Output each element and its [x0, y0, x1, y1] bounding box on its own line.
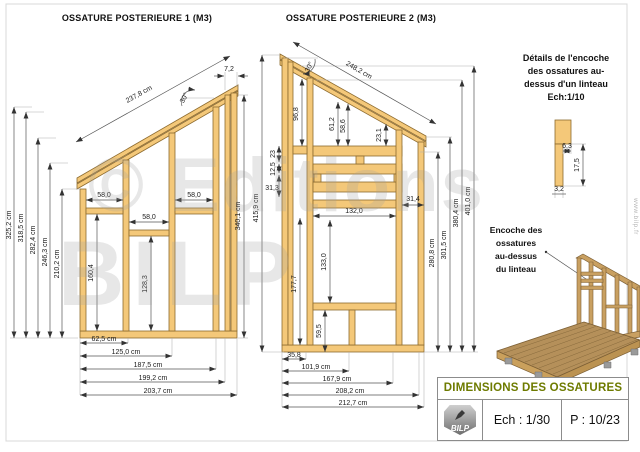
- dim-label: 415,9 cm: [253, 193, 260, 222]
- pencil-icon: [455, 410, 465, 420]
- plan-sheet: 237,8 cm 30° 7,2 325,2 cm 318,5 cm 282,4…: [0, 0, 640, 452]
- dim-label: 128,3: [142, 275, 149, 293]
- callout-line: ossatures: [484, 237, 548, 250]
- page-number: P : 10/23: [562, 400, 628, 440]
- dim-label: 59,5: [316, 324, 323, 338]
- dim-label: 380,4 cm: [453, 198, 460, 227]
- dim-label: 58,6: [340, 119, 347, 133]
- detail-title-line: des ossatures au-: [495, 65, 637, 78]
- logo-text: BILP: [444, 424, 476, 433]
- dim-label: 7,2: [224, 66, 234, 73]
- dim-label: 58,0: [142, 214, 156, 221]
- dim-label: 167,9 cm: [323, 376, 352, 383]
- titleblock-title: DIMENSIONS DES OSSATURES: [438, 378, 628, 400]
- dim-label: 237,8 cm: [125, 85, 154, 105]
- frame2-drawing: 248,2 cm 30° 415,9 cm 96,8 177,7 61,2 58…: [253, 42, 478, 407]
- dim-label: 31,4: [406, 196, 420, 203]
- dim-label: 35,8: [287, 352, 301, 359]
- notch-detail-drawing: 6,3 17,5 3,2: [552, 120, 586, 198]
- detail-scale: Ech:1/10: [495, 91, 637, 104]
- dim-label: 101,9 cm: [302, 364, 331, 371]
- dim-label: 160,4: [88, 264, 95, 282]
- dim-label: 301,5 cm: [441, 230, 448, 259]
- dim-label: 3,2: [554, 186, 564, 193]
- dim-label: 17,5: [574, 158, 581, 172]
- bilp-logo: BILP: [438, 400, 483, 440]
- dim-label: 96,8: [293, 107, 300, 121]
- bilp-shield-icon: BILP: [444, 405, 476, 435]
- dim-label: 199,2 cm: [139, 375, 168, 382]
- dim-label: 132,0: [345, 208, 363, 215]
- dim-label: 212,7 cm: [339, 400, 368, 407]
- dim-label: 12,5: [270, 162, 277, 176]
- dim-label: 30°: [178, 91, 190, 104]
- website-url: www.bilp.fr: [632, 198, 639, 235]
- frame2-title: OSSATURE POSTERIEURE 2 (M3): [261, 13, 461, 23]
- dim-label: 133,0: [321, 253, 328, 271]
- notch-callout: Encoche des ossatures au-dessus du linte…: [484, 224, 548, 276]
- dim-label: 58,0: [187, 192, 201, 199]
- notch-detail-title: Détails de l'encoche des ossatures au- d…: [495, 52, 637, 104]
- dim-label: 61,2: [329, 117, 336, 131]
- dim-label: 248,2 cm: [345, 60, 374, 81]
- frame1-drawing: 237,8 cm 30° 7,2 325,2 cm 318,5 cm 282,4…: [6, 56, 248, 395]
- dim-label: 325,2 cm: [6, 210, 13, 239]
- dim-label: 6,3: [562, 143, 572, 150]
- callout-line: Encoche des: [484, 224, 548, 237]
- frame1-title: OSSATURE POSTERIEURE 1 (M3): [37, 13, 237, 23]
- dim-label: 340,1 cm: [235, 201, 242, 230]
- dim-label: 23,1: [376, 128, 383, 142]
- dim-label: 401,0 cm: [465, 186, 472, 215]
- dim-label: 31,3: [265, 185, 279, 192]
- dim-label: 62,5 cm: [92, 336, 117, 343]
- dim-label: 203,7 cm: [144, 388, 173, 395]
- detail-title-line: dessus d'un linteau: [495, 78, 637, 91]
- dim-label: 23: [270, 150, 277, 158]
- dim-label: 280,8 cm: [429, 238, 436, 267]
- dim-label: 30°: [303, 60, 315, 73]
- dim-label: 210,2 cm: [54, 249, 61, 278]
- detail-title-line: Détails de l'encoche: [495, 52, 637, 65]
- callout-line: au-dessus: [484, 250, 548, 263]
- dim-label: 208,2 cm: [336, 388, 365, 395]
- dim-label: 58,0: [97, 192, 111, 199]
- dim-label: 246,3 cm: [42, 237, 49, 266]
- callout-line: du linteau: [484, 263, 548, 276]
- title-block: DIMENSIONS DES OSSATURES BILP Ech : 1/30…: [437, 377, 629, 441]
- dim-label: 282,4 cm: [30, 225, 37, 254]
- dim-label: 177,7: [291, 275, 298, 293]
- dim-label: 318,5 cm: [18, 213, 25, 242]
- dim-label: 125,0 cm: [112, 349, 141, 356]
- scale-value: Ech : 1/30: [483, 400, 562, 440]
- dim-label: 187,5 cm: [134, 362, 163, 369]
